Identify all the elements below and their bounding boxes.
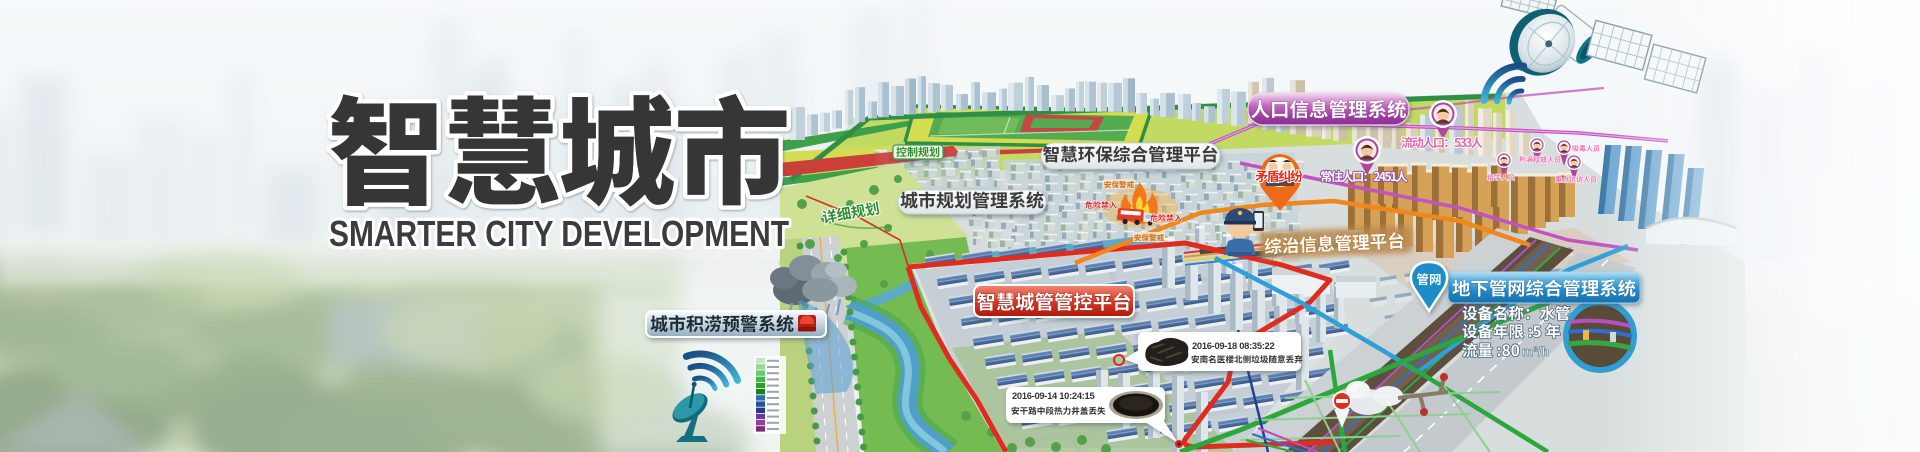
svg-text:m³/h: m³/h <box>1522 344 1550 359</box>
svg-text:2016-09-14 10:24:15: 2016-09-14 10:24:15 <box>1012 390 1094 401</box>
svg-text:SMARTER CITY DEVELOPMENT: SMARTER CITY DEVELOPMENT <box>329 213 789 254</box>
svg-text:2016-09-18 08:35:22: 2016-09-18 08:35:22 <box>1192 340 1274 351</box>
